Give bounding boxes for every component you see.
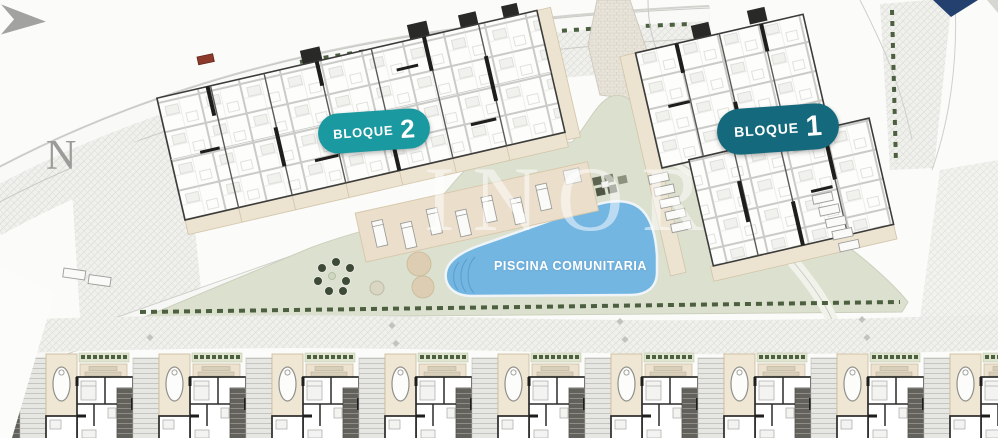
- house-unit: [133, 353, 248, 438]
- houses-row: [0, 353, 998, 438]
- north-label: N: [46, 132, 76, 180]
- badge-bloque-2-label: BLOQUE: [333, 122, 394, 141]
- badge-bloque-1-number: 1: [805, 111, 823, 141]
- house-unit: [585, 353, 700, 438]
- site-plan-drawing: [0, 0, 998, 438]
- red-car: [197, 54, 214, 65]
- house-unit: [698, 353, 813, 438]
- pool-label: PISCINA COMUNITARIA: [468, 259, 673, 273]
- site-plan: INOR N BLOQUE 2 BLOQUE 1 PISCINA COMUNIT…: [0, 0, 998, 438]
- house-unit: [20, 353, 135, 438]
- pavement-top-right: [860, 0, 998, 320]
- badge-bloque-2-number: 2: [399, 115, 415, 142]
- north-arrow-icon: [0, 0, 48, 40]
- house-unit: [811, 353, 926, 438]
- badge-bloque-2[interactable]: BLOQUE 2: [317, 107, 432, 155]
- house-unit: [924, 353, 998, 438]
- house-unit: [359, 353, 474, 438]
- badge-bloque-1-label: BLOQUE: [734, 120, 800, 140]
- bottom-road: [0, 314, 998, 354]
- badge-bloque-1[interactable]: BLOQUE 1: [716, 102, 841, 156]
- corner-triangle: [987, 0, 998, 13]
- house-unit: [246, 353, 361, 438]
- house-unit: [472, 353, 587, 438]
